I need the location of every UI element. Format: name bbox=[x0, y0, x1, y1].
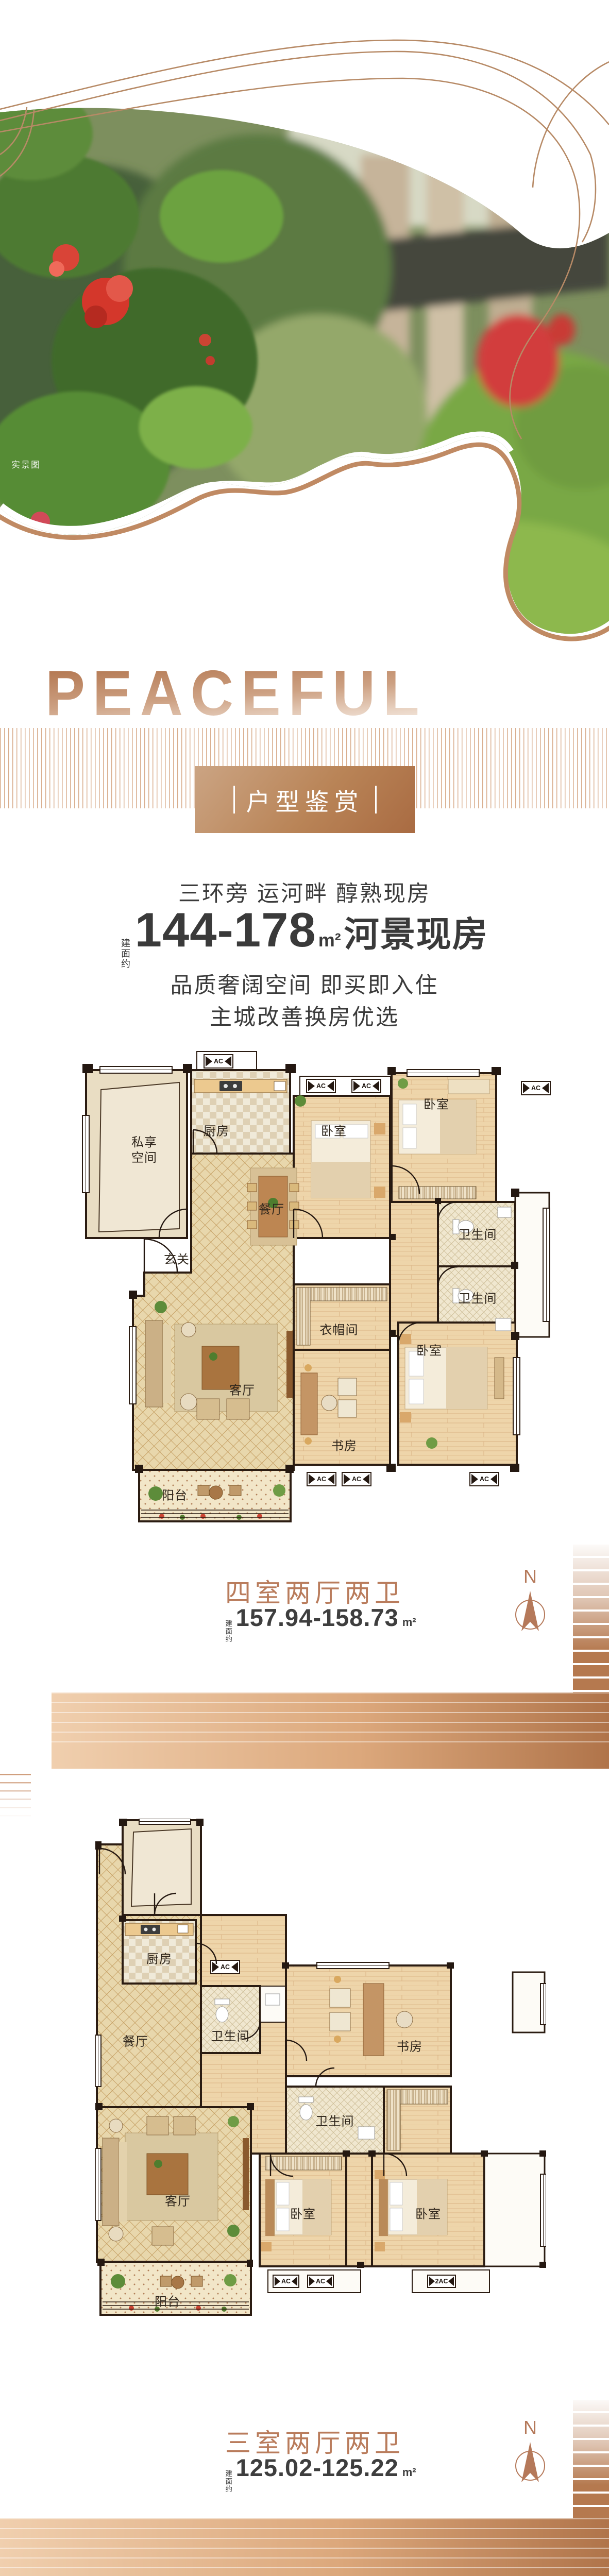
floorplan-3br: 厨房 餐厅 卫生间 书房 卫生间 客厅 卧室 卧室 阳台 AC AC AC 2A… bbox=[95, 1819, 546, 2321]
floorplan-4br-drawing bbox=[69, 1038, 553, 1525]
room-label-bedroom: 卧室 bbox=[416, 1341, 442, 1359]
toilet bbox=[215, 1999, 229, 2022]
ac-label: AC bbox=[352, 1476, 361, 1483]
plan1-area: 建面约 157.94-158.73 m² bbox=[225, 1606, 416, 1643]
plant bbox=[155, 1301, 167, 1313]
section-badge: 户型鉴赏 bbox=[195, 766, 415, 833]
stove bbox=[141, 1925, 160, 1934]
ac-label: AC bbox=[214, 1058, 223, 1065]
copper-ladder-right bbox=[573, 2400, 609, 2518]
plan2-area: 建面约 125.02-125.22 m² bbox=[225, 2456, 416, 2493]
ac-label: AC bbox=[317, 1476, 326, 1483]
north-label: N bbox=[512, 1567, 548, 1586]
stove bbox=[219, 1081, 242, 1091]
room-label-bath: 卫生间 bbox=[459, 1225, 497, 1243]
plan1-area-value: 157.94-158.73 bbox=[236, 1606, 399, 1630]
hero-photo bbox=[0, 0, 609, 644]
plan2-area-unit: m² bbox=[402, 2466, 416, 2479]
room-label-study: 书房 bbox=[331, 1436, 357, 1454]
poster-page: 实景图 PEACEFUL 户型鉴赏 三环旁 运河畔 醇熟现房 建面约 144-1… bbox=[0, 0, 609, 2576]
kitchen-sink bbox=[178, 1925, 188, 1933]
room-label-dining: 餐厅 bbox=[123, 2031, 148, 2049]
room-label-bath: 卫生间 bbox=[316, 2111, 354, 2129]
ac-label: AC bbox=[281, 2278, 291, 2285]
footer-band bbox=[0, 2518, 609, 2576]
ac-label: 2AC bbox=[435, 2278, 448, 2285]
plant bbox=[426, 1437, 437, 1449]
plan2-area-prefix: 建面约 bbox=[225, 2470, 233, 2493]
divider-band bbox=[52, 1692, 609, 1769]
toilet bbox=[299, 2097, 313, 2120]
room-label-bath: 卫生间 bbox=[459, 1289, 497, 1307]
room-label-dining: 餐厅 bbox=[259, 1199, 284, 1217]
compass-needle-icon bbox=[512, 1586, 548, 1635]
bath-sink bbox=[498, 1207, 511, 1217]
copper-ladder-right bbox=[573, 1545, 609, 1692]
area-value: 144-178 bbox=[135, 907, 316, 953]
room-label-foyer: 玄关 bbox=[164, 1249, 190, 1267]
copper-ladder-left bbox=[0, 1774, 31, 1817]
room-label-cloakroom: 衣帽间 bbox=[320, 1320, 359, 1338]
photo-watermark: 实景图 bbox=[11, 457, 41, 470]
room-label-living: 客厅 bbox=[229, 1380, 255, 1398]
room-label-study: 书房 bbox=[397, 2037, 422, 2055]
compass-needle-icon bbox=[512, 2437, 548, 2486]
badge-divider bbox=[375, 786, 377, 814]
room-label-balcony: 阳台 bbox=[162, 1485, 188, 1503]
bath-sink bbox=[265, 1994, 280, 2005]
room-label-living: 客厅 bbox=[165, 2191, 191, 2209]
ac-label: AC bbox=[531, 1084, 540, 1092]
room-label-kitchen: 厨房 bbox=[146, 1949, 172, 1967]
room-label-kitchen: 厨房 bbox=[204, 1121, 229, 1139]
headline-area-row: 建面约 144-178 m² 河景现房 bbox=[0, 906, 609, 969]
room-label-bedroom: 卧室 bbox=[290, 2204, 316, 2222]
north-compass: N bbox=[512, 1567, 548, 1638]
room-label-bedroom: 卧室 bbox=[321, 1121, 347, 1139]
plan1-area-unit: m² bbox=[402, 1616, 416, 1629]
ac-label: AC bbox=[362, 1082, 371, 1090]
north-label: N bbox=[512, 2418, 548, 2437]
kitchen-sink bbox=[274, 1081, 285, 1091]
area-unit: m² bbox=[318, 929, 341, 951]
plan2-area-value: 125.02-125.22 bbox=[236, 2456, 399, 2480]
plan1-area-prefix: 建面约 bbox=[225, 1620, 233, 1643]
headline-line4: 主城改善换房优选 bbox=[0, 999, 609, 1031]
room-label-bedroom: 卧室 bbox=[415, 2204, 441, 2222]
plant bbox=[398, 1078, 408, 1089]
floorplan-3br-drawing bbox=[95, 1819, 546, 2321]
badge-label: 户型鉴赏 bbox=[246, 782, 364, 818]
ac-label: AC bbox=[316, 1082, 326, 1090]
area-suffix: 河景现房 bbox=[344, 906, 488, 957]
room-label-private: 私享空间 bbox=[128, 1135, 160, 1166]
bath-sink bbox=[496, 1318, 511, 1331]
bath-sink bbox=[358, 2127, 375, 2139]
plant bbox=[295, 1095, 306, 1107]
ac-label: AC bbox=[316, 2278, 325, 2285]
north-compass: N bbox=[512, 2418, 548, 2489]
area-prefix: 建面约 bbox=[121, 938, 130, 969]
badge-divider bbox=[233, 786, 235, 814]
room-label-balcony: 阳台 bbox=[155, 2292, 180, 2310]
headline-line3: 品质奢阔空间 即买即入住 bbox=[0, 968, 609, 999]
ac-label: AC bbox=[221, 1963, 230, 1971]
room-label-bedroom: 卧室 bbox=[424, 1094, 449, 1112]
room-label-bath: 卫生间 bbox=[211, 2026, 250, 2044]
ac-label: AC bbox=[480, 1476, 489, 1483]
peaceful-title: PEACEFUL bbox=[45, 662, 427, 725]
floorplan-4br: 私享空间 厨房 卧室 卧室 餐厅 玄关 卫生间 卫生间 衣帽间 卧室 客厅 书房… bbox=[69, 1038, 553, 1525]
